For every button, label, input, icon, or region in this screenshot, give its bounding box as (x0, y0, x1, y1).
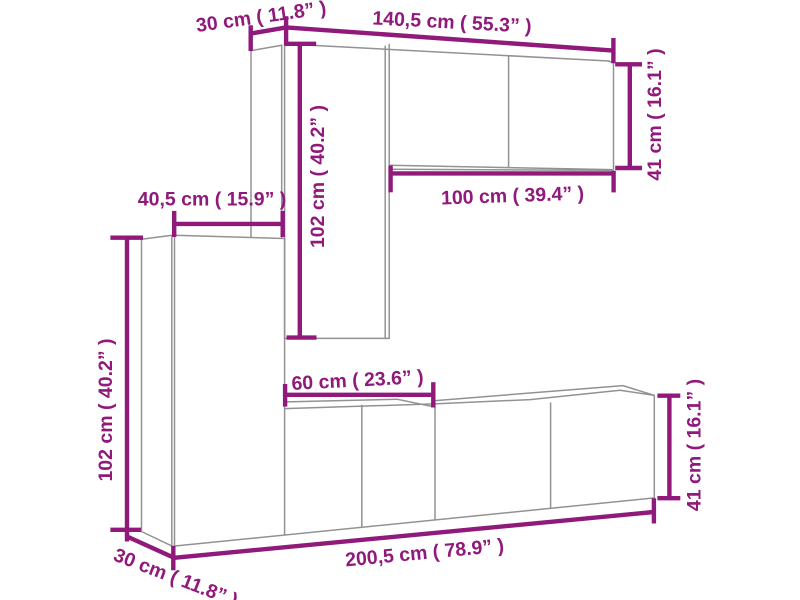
svg-text:102 cm ( 40.2” ): 102 cm ( 40.2” ) (95, 338, 117, 481)
svg-text:102 cm ( 40.2” ): 102 cm ( 40.2” ) (307, 105, 329, 248)
svg-text:40,5 cm ( 15.9” ): 40,5 cm ( 15.9” ) (138, 189, 287, 211)
svg-text:41 cm ( 16.1” ): 41 cm ( 16.1” ) (644, 48, 666, 180)
svg-text:41 cm ( 16.1” ): 41 cm ( 16.1” ) (684, 379, 706, 511)
